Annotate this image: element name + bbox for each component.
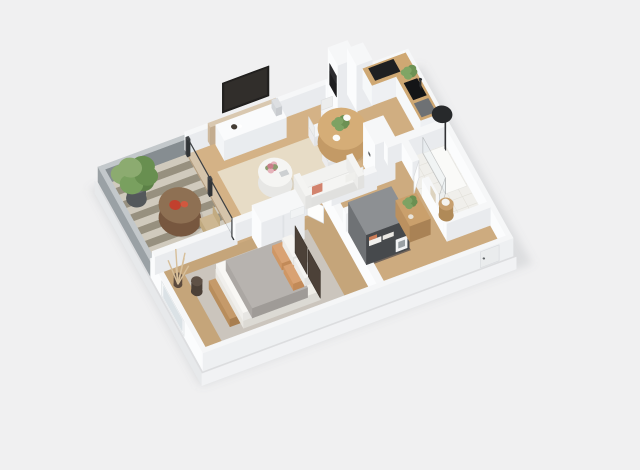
page-background [0,0,640,470]
floorplan-3d-render [0,0,640,470]
